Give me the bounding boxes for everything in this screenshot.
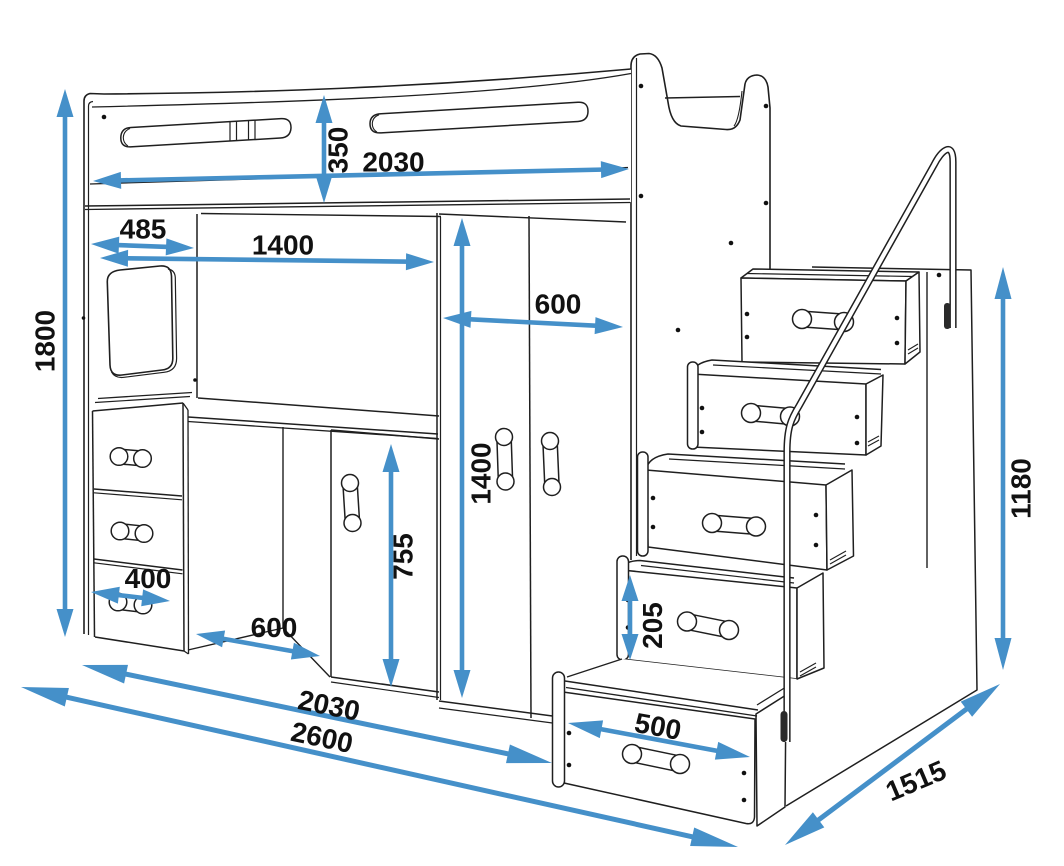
svg-text:350: 350 [322,127,353,174]
svg-text:1400: 1400 [466,442,497,504]
svg-text:755: 755 [388,533,419,580]
svg-text:205: 205 [637,602,668,649]
svg-text:2030: 2030 [362,147,424,178]
svg-text:600: 600 [251,612,298,643]
svg-text:400: 400 [125,563,172,594]
svg-text:1800: 1800 [30,310,61,372]
svg-text:485: 485 [120,214,167,245]
svg-text:1400: 1400 [252,230,314,261]
svg-text:1180: 1180 [1006,458,1037,519]
svg-text:600: 600 [535,289,582,320]
